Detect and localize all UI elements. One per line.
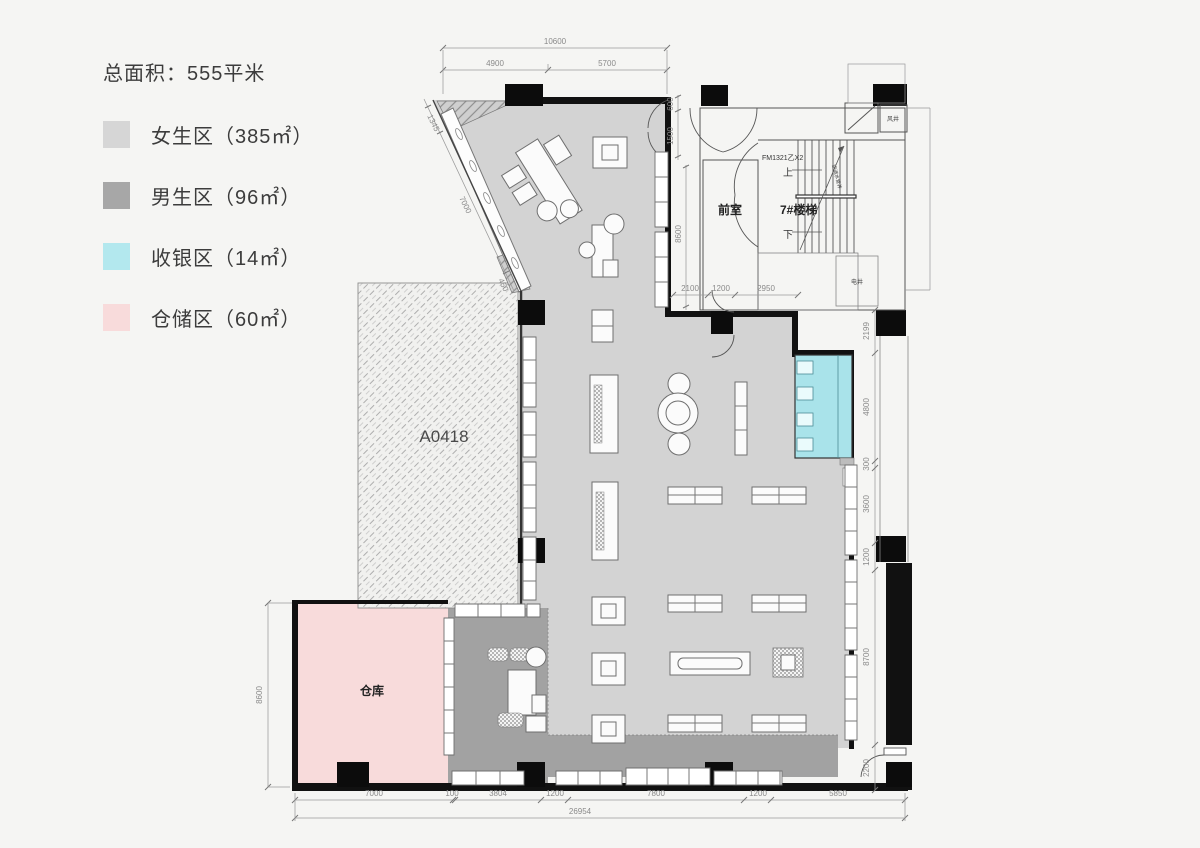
svg-text:2100: 2100 bbox=[681, 284, 699, 293]
dims-right: 2199 4800 300 3600 1200 8700 2200 bbox=[862, 307, 878, 793]
svg-text:4900: 4900 bbox=[486, 59, 504, 68]
svg-text:2199: 2199 bbox=[862, 322, 871, 340]
dims-below-vestibule: 2100 1200 2950 bbox=[670, 284, 801, 298]
unit-label: A0418 bbox=[419, 427, 468, 446]
svg-text:2950: 2950 bbox=[757, 284, 775, 293]
floor-plan: A0418 bbox=[0, 0, 1200, 848]
svg-text:1200: 1200 bbox=[546, 789, 564, 798]
svg-text:600: 600 bbox=[666, 97, 675, 111]
stair-down-label: 下 bbox=[783, 230, 793, 241]
svg-text:100: 100 bbox=[445, 789, 459, 798]
svg-text:8700: 8700 bbox=[862, 648, 871, 666]
door-code-label: FM1321乙X2 bbox=[762, 154, 803, 162]
svg-text:4800: 4800 bbox=[862, 398, 871, 416]
wind-shaft-label: 风井 bbox=[887, 115, 899, 123]
svg-text:5700: 5700 bbox=[598, 59, 616, 68]
dims-bottom: 7000 100 3804 1200 7800 1200 5850 26954 bbox=[292, 789, 908, 821]
svg-text:7000: 7000 bbox=[365, 789, 383, 798]
utility-shaft-label: 电井 bbox=[851, 278, 863, 286]
stair-label: 7#楼梯 bbox=[780, 202, 817, 217]
svg-text:8600: 8600 bbox=[674, 225, 683, 243]
right-exterior-wall bbox=[880, 336, 908, 562]
nested-square-displays bbox=[592, 597, 625, 743]
dims-left: 8600 bbox=[255, 600, 292, 790]
svg-text:1200: 1200 bbox=[749, 789, 767, 798]
svg-text:10600: 10600 bbox=[544, 37, 567, 46]
svg-text:3804: 3804 bbox=[489, 789, 507, 798]
svg-text:1500: 1500 bbox=[666, 127, 675, 145]
svg-text:7000: 7000 bbox=[457, 195, 473, 215]
svg-text:8600: 8600 bbox=[255, 686, 264, 704]
dims-top: 10600 4900 5700 bbox=[440, 37, 670, 94]
warehouse-label: 仓库 bbox=[359, 683, 384, 698]
svg-text:3600: 3600 bbox=[862, 495, 871, 513]
svg-text:5850: 5850 bbox=[829, 789, 847, 798]
stair-up-label: 上 bbox=[783, 167, 793, 179]
svg-text:300: 300 bbox=[862, 457, 871, 471]
svg-text:1200: 1200 bbox=[712, 284, 730, 293]
svg-text:2200: 2200 bbox=[862, 759, 871, 777]
neighbour-unit: A0418 bbox=[358, 283, 518, 608]
pipe-shaft-label: 空调水管井 bbox=[830, 164, 843, 190]
svg-text:1200: 1200 bbox=[862, 548, 871, 566]
vestibule-label: 前室 bbox=[718, 202, 742, 217]
svg-text:7800: 7800 bbox=[647, 789, 665, 798]
svg-text:26954: 26954 bbox=[569, 807, 592, 816]
